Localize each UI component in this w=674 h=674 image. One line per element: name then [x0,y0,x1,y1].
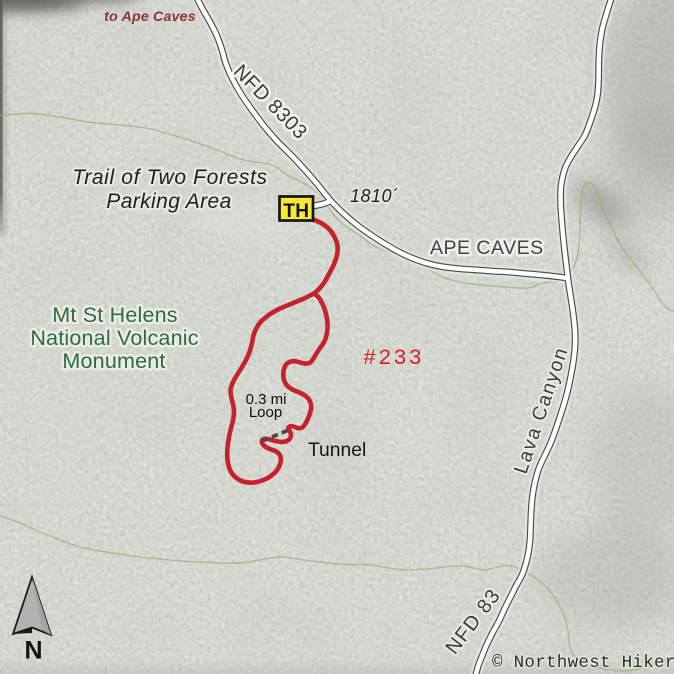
svg-text:N: N [24,637,42,665]
svg-text:© Northwest Hiker: © Northwest Hiker [492,653,674,673]
svg-text:Monument: Monument [62,349,165,373]
svg-text:Tunnel: Tunnel [308,440,366,461]
svg-text:TH: TH [283,201,309,222]
svg-text:#233: #233 [363,346,424,371]
svg-text:Trail of Two Forests: Trail of Two Forests [72,166,267,189]
svg-text:Parking Area: Parking Area [106,190,231,213]
svg-text:National Volcanic: National Volcanic [30,326,198,350]
svg-text:to Ape Caves: to Ape Caves [104,9,196,25]
svg-text:1810´: 1810´ [350,186,399,206]
svg-text:APE CAVES: APE CAVES [430,237,544,259]
svg-text:Mt St Helens: Mt St Helens [52,303,177,327]
svg-text:Loop: Loop [249,404,282,421]
